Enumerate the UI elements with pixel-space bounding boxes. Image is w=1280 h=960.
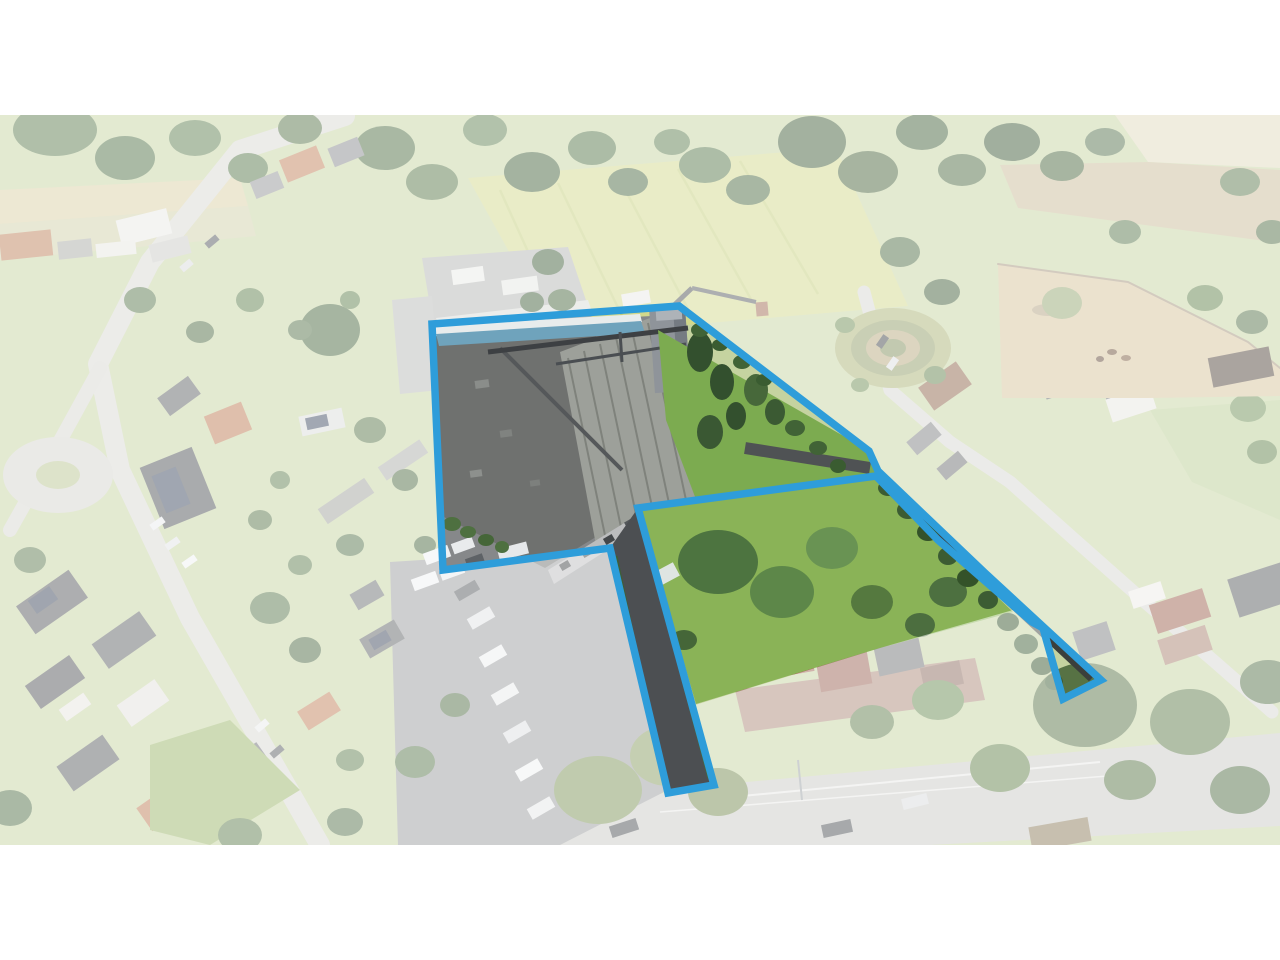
aerial-photo bbox=[0, 0, 1280, 960]
photo-scene bbox=[0, 104, 1280, 852]
real-estate-aerial-screenshot bbox=[0, 0, 1280, 960]
